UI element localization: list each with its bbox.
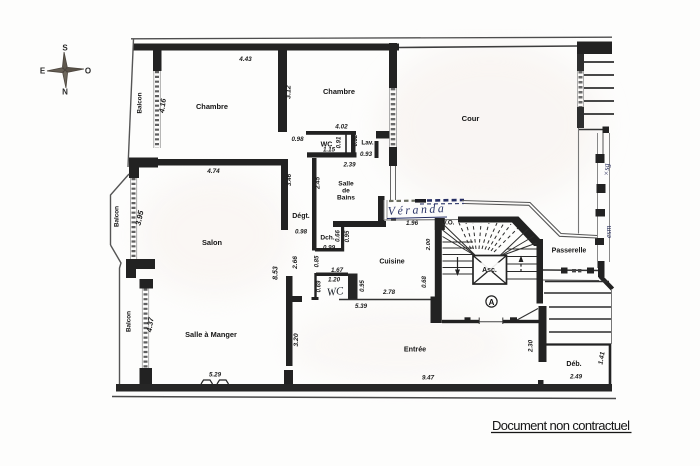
svg-text:Dégt.: Dégt. xyxy=(292,213,310,220)
svg-text:4.02: 4.02 xyxy=(334,124,348,131)
svg-text:1.67: 1.67 xyxy=(331,267,344,274)
svg-text:0.98: 0.98 xyxy=(291,136,304,143)
svg-text:9.47: 9.47 xyxy=(422,375,435,382)
svg-text:0.98: 0.98 xyxy=(295,229,308,236)
svg-text:V.O.: V.O. xyxy=(443,220,455,227)
svg-text:Balcon: Balcon xyxy=(126,311,133,332)
svg-text:3.20: 3.20 xyxy=(293,333,300,346)
svg-text:0.85: 0.85 xyxy=(315,255,321,267)
svg-text:de: de xyxy=(342,188,350,195)
svg-text:0.99: 0.99 xyxy=(323,245,336,252)
svg-text:S: S xyxy=(62,44,68,53)
svg-text:Salle: Salle xyxy=(338,181,354,188)
svg-text:3.46: 3.46 xyxy=(286,173,293,186)
svg-text:Bains: Bains xyxy=(337,195,355,202)
svg-text:0.95: 0.95 xyxy=(360,280,366,292)
svg-text:5.29: 5.29 xyxy=(209,372,222,379)
svg-text:0.69: 0.69 xyxy=(317,280,323,292)
svg-text:N: N xyxy=(62,88,68,97)
svg-text:O: O xyxy=(85,67,91,76)
svg-text:E: E xyxy=(40,67,46,76)
svg-text:2.49: 2.49 xyxy=(569,374,583,381)
svg-text:Chambre: Chambre xyxy=(196,102,228,111)
svg-text:0.66: 0.66 xyxy=(336,230,342,242)
svg-text:Asc.: Asc. xyxy=(482,267,497,274)
svg-text:1.96: 1.96 xyxy=(406,220,419,227)
svg-text:Entrée: Entrée xyxy=(404,345,426,354)
svg-text:2.39: 2.39 xyxy=(342,162,356,169)
svg-text:A: A xyxy=(489,298,495,307)
svg-text:0.68: 0.68 xyxy=(422,276,428,288)
svg-text:Balcon: Balcon xyxy=(114,206,121,227)
svg-text:Document non contractuel: Document non contractuel xyxy=(492,418,630,433)
svg-text:4.74: 4.74 xyxy=(206,168,220,175)
svg-text:2.45: 2.45 xyxy=(315,176,322,190)
svg-text:2.66: 2.66 xyxy=(292,256,299,270)
svg-text:1.20: 1.20 xyxy=(328,277,341,284)
svg-text:0.93: 0.93 xyxy=(360,151,373,158)
svg-text:Dch.: Dch. xyxy=(320,235,334,242)
svg-text:esm: esm xyxy=(604,225,613,238)
svg-text:Salon: Salon xyxy=(202,238,223,247)
svg-text:0.91: 0.91 xyxy=(337,136,343,148)
svg-text:Cuisine: Cuisine xyxy=(379,259,404,266)
svg-text:Lav.: Lav. xyxy=(361,140,374,147)
svg-text:3.12: 3.12 xyxy=(286,85,293,99)
svg-text:×sg: ×sg xyxy=(602,163,611,176)
svg-text:Salle à Manger: Salle à Manger xyxy=(185,330,237,339)
svg-text:0.95: 0.95 xyxy=(345,230,351,242)
svg-text:Chambre: Chambre xyxy=(323,87,355,96)
svg-text:2.78: 2.78 xyxy=(382,289,396,296)
svg-text:WC: WC xyxy=(326,285,344,299)
svg-text:Déb.: Déb. xyxy=(566,361,581,368)
svg-text:0.92: 0.92 xyxy=(353,134,359,146)
svg-text:2.00: 2.00 xyxy=(426,238,432,251)
svg-text:5.39: 5.39 xyxy=(355,303,368,310)
svg-text:Cour: Cour xyxy=(462,114,480,123)
svg-text:1.15: 1.15 xyxy=(323,147,336,154)
svg-text:8.53: 8.53 xyxy=(273,266,280,280)
svg-text:Passerelle: Passerelle xyxy=(552,248,587,255)
svg-text:4.43: 4.43 xyxy=(238,56,252,63)
svg-text:Balcon: Balcon xyxy=(137,92,144,113)
svg-text:2.30: 2.30 xyxy=(528,339,535,353)
